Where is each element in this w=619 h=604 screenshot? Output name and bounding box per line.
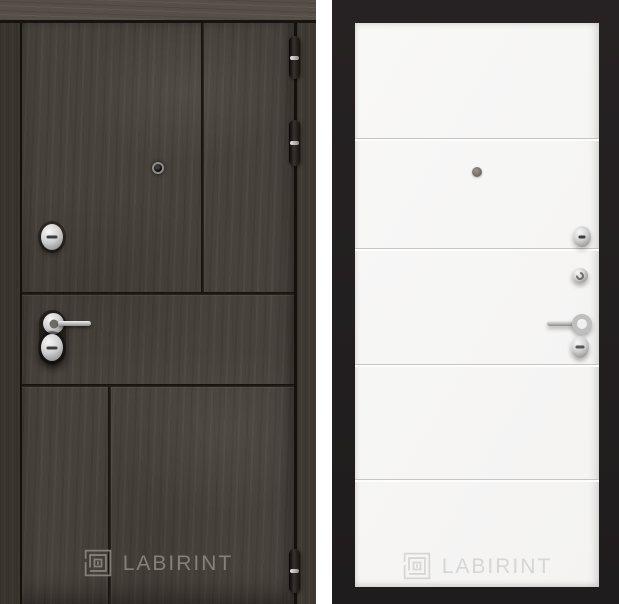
molding-line-1 <box>355 138 599 142</box>
keyhole-escutcheon <box>571 336 589 358</box>
hinge-bottom <box>289 549 300 593</box>
knob-slot <box>579 235 586 238</box>
labirint-maze-icon <box>402 551 432 581</box>
peephole-icon <box>472 167 482 177</box>
horizontal-groove-2 <box>22 384 294 387</box>
interior-door-photo: LABIRINT <box>332 0 619 604</box>
keyhole-slot <box>576 346 585 349</box>
peephole-icon <box>152 162 164 174</box>
door-jamb-left <box>0 23 22 604</box>
lever-handle <box>58 321 91 326</box>
latch-knob <box>573 226 591 247</box>
brand-name: LABIRINT <box>442 556 553 577</box>
keyhole-slot <box>47 346 58 349</box>
molding-line-4 <box>355 479 599 483</box>
molding-line-2 <box>355 248 599 252</box>
handle-hub <box>49 319 58 328</box>
vertical-groove-upper <box>201 23 204 292</box>
horizontal-groove-1 <box>22 292 294 295</box>
door-jamb-right <box>294 23 316 604</box>
hinge-top <box>289 36 300 79</box>
brand-logo-exterior: LABIRINT <box>22 548 294 578</box>
door-leaf-interior: LABIRINT <box>355 23 599 587</box>
handle-rose <box>572 314 592 334</box>
brand-name: LABIRINT <box>123 553 234 574</box>
door-leaf-exterior: LABIRINT <box>22 23 294 604</box>
keyhole-escutcheon <box>41 334 63 361</box>
hinge-pin <box>290 569 299 573</box>
hinge-upper <box>289 120 300 166</box>
labirint-maze-icon <box>83 548 113 578</box>
hinge-pin <box>290 56 299 60</box>
hinge-pin <box>290 141 299 145</box>
molding-line-3 <box>355 364 599 368</box>
exterior-door-photo: LABIRINT <box>0 0 316 604</box>
cylinder-slot <box>47 236 58 239</box>
brand-logo-interior: LABIRINT <box>355 551 599 581</box>
door-frame-lintel <box>0 0 316 23</box>
thumbturn-swirl <box>574 270 585 281</box>
door-product-image: LABIRINT <box>0 0 619 604</box>
thumbturn <box>572 268 588 283</box>
lock-cylinder <box>41 224 63 250</box>
